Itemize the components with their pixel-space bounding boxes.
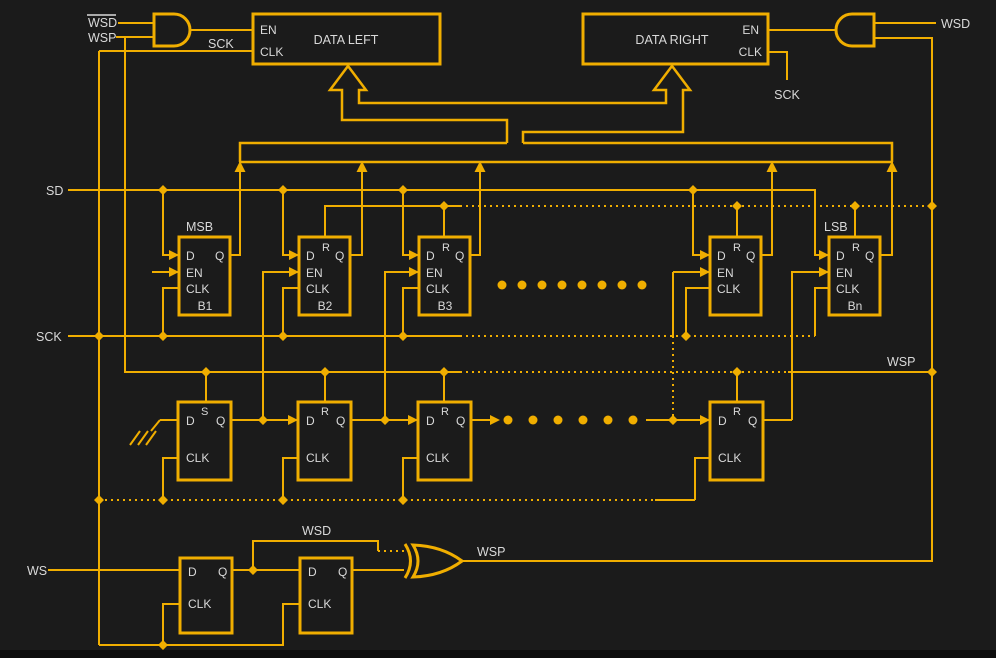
- label-lsb: LSB: [824, 220, 848, 234]
- bus-arrow-outline: [240, 66, 892, 162]
- reg-left-title: DATA LEFT: [314, 33, 379, 47]
- register-data-left: EN CLK DATA LEFT: [260, 23, 379, 59]
- pin-r: R: [321, 406, 329, 418]
- and-gate-right-body: [836, 14, 874, 46]
- bus-feed-left: [240, 143, 507, 162]
- label-wsd-top-right: WSD: [941, 17, 970, 31]
- pin-q: Q: [746, 249, 755, 263]
- ground-strokes: [130, 420, 160, 445]
- pin-clk: CLK: [836, 282, 859, 296]
- ff-name-b1: B1: [198, 299, 213, 313]
- pin-d: D: [717, 249, 726, 263]
- pin-clk: CLK: [186, 282, 209, 296]
- pin-d: D: [186, 249, 195, 263]
- pin-clk: CLK: [186, 451, 209, 465]
- label-wsp-right: WSP: [887, 355, 915, 369]
- reg-right-title: DATA RIGHT: [635, 33, 709, 47]
- pin-q: Q: [215, 249, 224, 263]
- pin-r: R: [442, 242, 450, 254]
- pin-d: D: [186, 414, 195, 428]
- wire-wsp-left-rail: [125, 37, 932, 372]
- pin-clk: CLK: [426, 282, 449, 296]
- pin-d: D: [836, 249, 845, 263]
- bit-ff-bn: D R Q EN CLK Bn: [836, 242, 874, 313]
- pin-d: D: [188, 565, 197, 579]
- ptr-ff2: D R Q CLK: [306, 406, 345, 465]
- wire-reset-line-solid: [325, 206, 460, 237]
- label-sck-left: SCK: [36, 330, 62, 344]
- and-gate-right: [836, 14, 874, 46]
- reg-left-clk-label: CLK: [260, 45, 283, 59]
- pin-r: R: [733, 406, 741, 418]
- ptr-ff3: D R Q CLK: [426, 406, 465, 465]
- bit-ff-b3: D R Q EN CLK B3: [426, 242, 464, 313]
- xor-gate: [405, 544, 462, 578]
- pin-clk: CLK: [308, 597, 331, 611]
- pin-d: D: [426, 249, 435, 263]
- pin-q: Q: [865, 249, 874, 263]
- pin-q: Q: [335, 249, 344, 263]
- label-msb: MSB: [186, 220, 213, 234]
- pin-q: Q: [456, 414, 465, 428]
- pin-clk: CLK: [306, 282, 329, 296]
- reg-left-en-label: EN: [260, 23, 277, 37]
- label-wsp-top-left: WSP: [88, 31, 116, 45]
- pin-en: EN: [426, 266, 443, 280]
- label-sck-right: SCK: [774, 88, 800, 102]
- ptr-ff1: D S Q CLK: [186, 406, 225, 465]
- wire-ptr-ff1: [160, 420, 298, 500]
- bus-arrow-shafts: [330, 66, 690, 143]
- schematic-canvas: WSD WSP SCK EN CLK DATA LEFT DATA RIGHT …: [0, 0, 996, 658]
- ff-name-b2: B2: [318, 299, 333, 313]
- label-ws: WS: [27, 564, 47, 578]
- pin-d: D: [718, 414, 727, 428]
- and-gate-left: [154, 14, 190, 46]
- xor-gate-body: [413, 545, 462, 577]
- pin-q: Q: [748, 414, 757, 428]
- wire-outff1-clk: [163, 604, 180, 645]
- pin-q: Q: [455, 249, 464, 263]
- pin-q: Q: [216, 414, 225, 428]
- label-sd: SD: [46, 184, 63, 198]
- bus-feed-right: [523, 143, 892, 162]
- pin-clk: CLK: [188, 597, 211, 611]
- reg-right-clk-label: CLK: [739, 45, 762, 59]
- bit-ff-b1: D Q EN CLK B1: [186, 249, 224, 313]
- ground-symbol: [130, 420, 160, 445]
- i2s-shift-register-schematic: WSD WSP SCK EN CLK DATA LEFT DATA RIGHT …: [0, 0, 996, 658]
- and-gate-left-body: [154, 14, 190, 46]
- ptr-ff4: D R Q CLK: [718, 406, 757, 465]
- pin-q: Q: [218, 565, 227, 579]
- label-wsp-bottom: WSP: [477, 545, 505, 559]
- ws-ff1: D Q CLK: [188, 565, 227, 611]
- pin-en: EN: [717, 266, 734, 280]
- pin-s: S: [201, 406, 208, 418]
- pin-q: Q: [336, 414, 345, 428]
- ptr-row-ellipsis: [504, 416, 638, 425]
- pin-clk: CLK: [426, 451, 449, 465]
- wire-wsp-s-r-taps: [206, 372, 737, 402]
- label-sck-top: SCK: [208, 37, 234, 51]
- reg-right-en-label: EN: [742, 23, 759, 37]
- pin-d: D: [426, 414, 435, 428]
- wire-dataright-clk-sck: [768, 52, 787, 80]
- pin-r: R: [441, 406, 449, 418]
- bit-ff-b2: D R Q EN CLK B2: [306, 242, 344, 313]
- ws-ff2: D Q CLK: [308, 565, 347, 611]
- pin-clk: CLK: [717, 282, 740, 296]
- ff-name-b3: B3: [438, 299, 453, 313]
- pin-q: Q: [338, 565, 347, 579]
- pin-r: R: [322, 242, 330, 254]
- pin-d: D: [306, 414, 315, 428]
- pin-r: R: [852, 242, 860, 254]
- bit-row-ellipsis: [498, 281, 647, 290]
- xor-gate-input-arc: [405, 544, 411, 578]
- pin-r: R: [733, 242, 741, 254]
- pin-en: EN: [306, 266, 323, 280]
- pin-clk: CLK: [306, 451, 329, 465]
- bottom-border-strip: [0, 650, 996, 658]
- register-data-right: DATA RIGHT EN CLK: [635, 23, 762, 59]
- label-wsd-bottom: WSD: [302, 524, 331, 538]
- pin-d: D: [308, 565, 317, 579]
- pin-en: EN: [186, 266, 203, 280]
- pin-en: EN: [836, 266, 853, 280]
- pin-clk: CLK: [718, 451, 741, 465]
- pin-d: D: [306, 249, 315, 263]
- label-wsd-inverted: WSD: [88, 16, 117, 30]
- ff-name-bn: Bn: [848, 299, 863, 313]
- bit-ff-bn1: D R Q EN CLK: [717, 242, 755, 296]
- wire-reset-taps: [444, 206, 855, 237]
